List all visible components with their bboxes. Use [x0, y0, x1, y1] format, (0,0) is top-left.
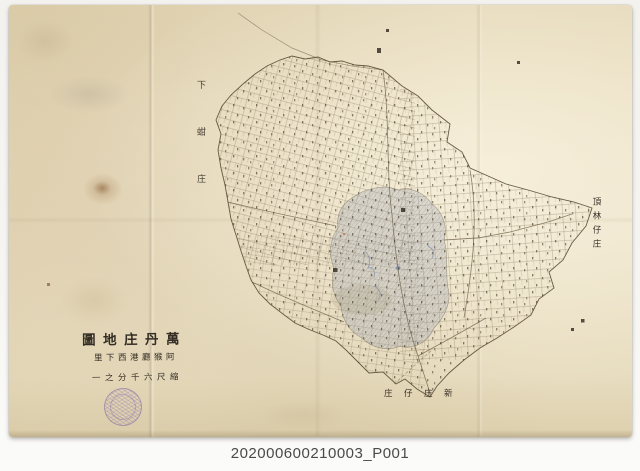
admin-district-line: 里下西港廳猴阿 — [94, 350, 178, 363]
stain — [17, 19, 73, 63]
fold-crease — [9, 217, 632, 223]
scale-line: 一之分千六尺縮 — [92, 370, 183, 383]
stain — [93, 181, 111, 195]
stain — [259, 400, 349, 430]
place-label-west: 下蚶庄 — [194, 80, 207, 221]
stain — [83, 173, 123, 205]
map-title: 圖地庄丹萬 — [82, 327, 187, 348]
place-label-south: 庄仔庄新 — [384, 387, 464, 399]
stain — [59, 277, 129, 325]
library-stamp-seal — [104, 388, 142, 426]
scan-photo: 圖地庄丹萬 里下西港廳猴阿 一之分千六尺縮 下蚶庄 頂林仔庄 庄仔庄新 2020… — [0, 0, 640, 471]
catalog-number: 202000600210003_P001 — [0, 445, 640, 462]
place-label-northeast: 頂林仔庄 — [590, 197, 602, 253]
stain — [49, 75, 129, 113]
